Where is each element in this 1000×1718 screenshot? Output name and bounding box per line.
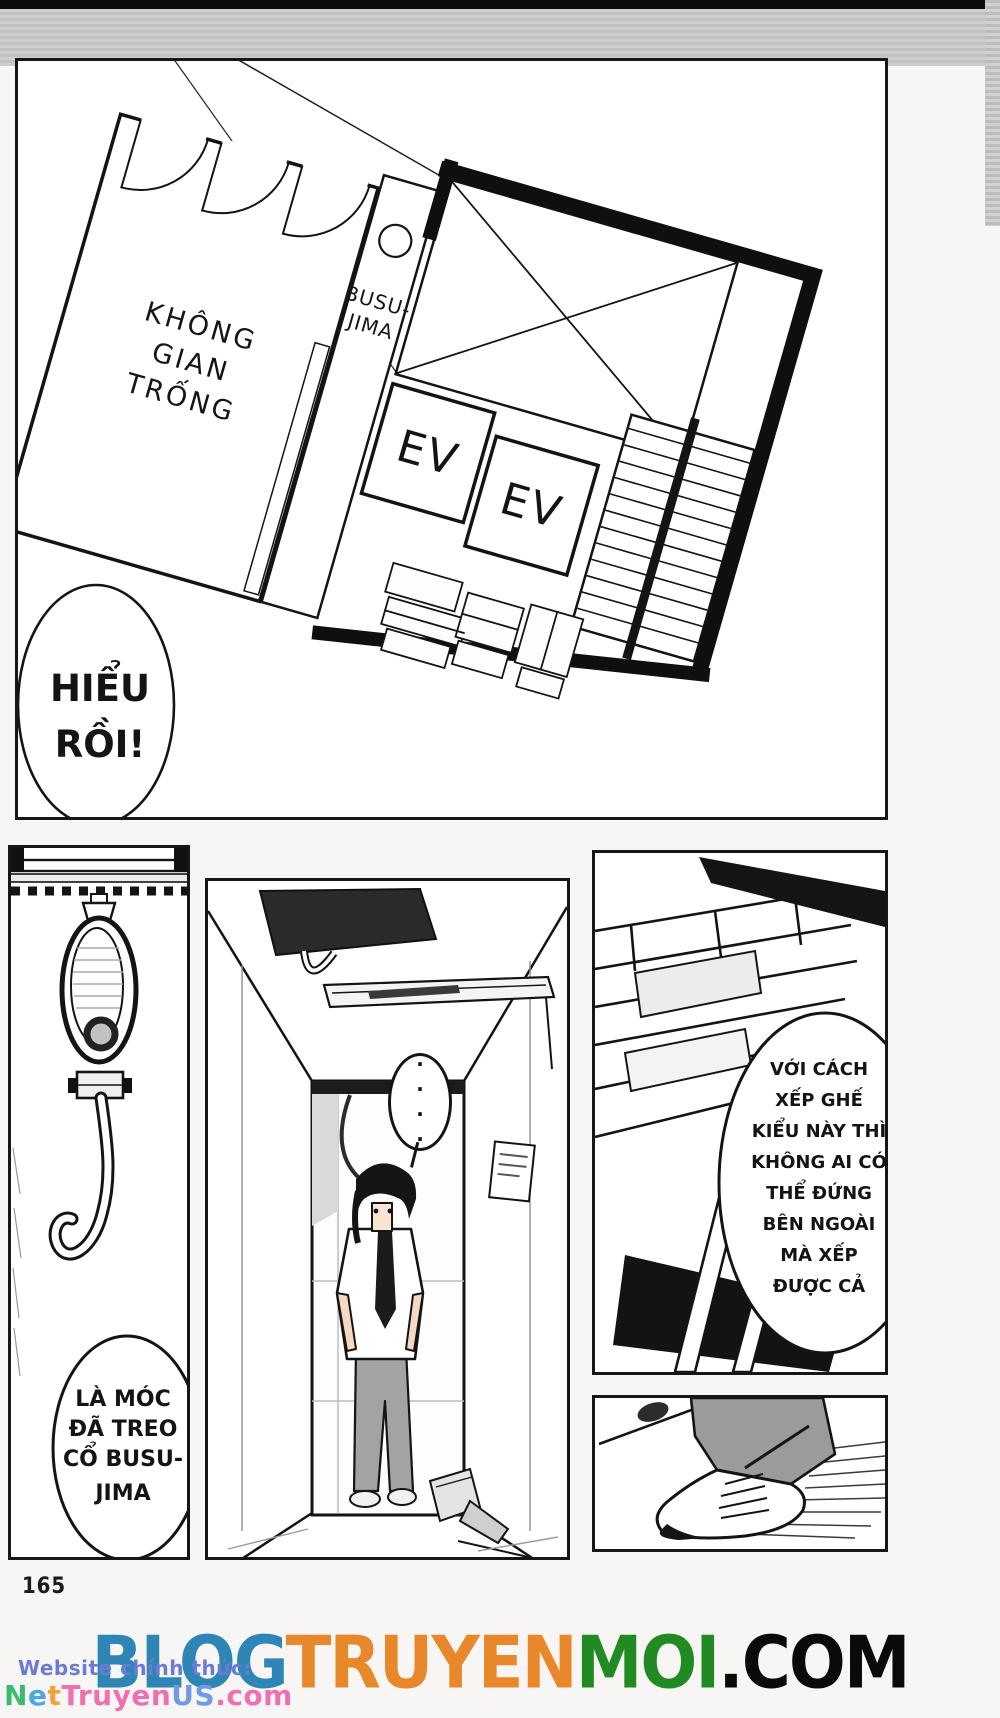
hook-panel: LÀ MÓC ĐÃ TREO CỔ BUSU- JIMA bbox=[8, 845, 190, 1560]
bubble-line: XẾP GHẾ bbox=[775, 1087, 863, 1111]
shadow-band-top bbox=[699, 857, 885, 927]
page-number: 165 bbox=[22, 1574, 66, 1599]
ellipsis-bubble: ···· bbox=[388, 1053, 452, 1151]
hallway-drawing bbox=[208, 881, 567, 1557]
bubble-line: KHÔNG AI CÓ bbox=[751, 1151, 885, 1173]
chairs-drawing: VỚI CÁCH XẾP GHẾ KIỂU NÀY THÌ KHÔNG AI C… bbox=[595, 853, 885, 1372]
bubble-line: LÀ MÓC bbox=[75, 1386, 170, 1412]
bubble-line: RỒI! bbox=[55, 717, 146, 766]
site-seg-us: US bbox=[171, 1679, 215, 1712]
ceiling-rail bbox=[11, 848, 187, 891]
bubble-line: HIỂU bbox=[50, 660, 150, 710]
site-seg-n: N bbox=[4, 1679, 28, 1712]
floorplan-drawing: KHÔNG GIAN TRỐNG BUSU- JIMA EV EV bbox=[18, 61, 885, 817]
bubble-line: MÀ XẾP bbox=[780, 1242, 857, 1266]
scan-top-bar bbox=[0, 0, 1000, 9]
furniture-cluster bbox=[369, 563, 583, 701]
bubble-line: ĐƯỢC CẢ bbox=[773, 1274, 866, 1297]
hallway-panel: ···· bbox=[205, 878, 570, 1560]
scan-halftone-band bbox=[0, 0, 1000, 66]
watermark-official-label: Website chính thức: bbox=[18, 1656, 252, 1680]
bubble-line: VỚI CÁCH bbox=[770, 1058, 868, 1080]
ceiling-sign bbox=[260, 889, 436, 971]
hook-drawing: LÀ MÓC ĐÃ TREO CỔ BUSU- JIMA bbox=[11, 848, 187, 1557]
wall-texture bbox=[13, 1148, 21, 1376]
logo-seg-truyen: TRUYEN bbox=[286, 1621, 576, 1705]
manga-page: { "page_number": "165", "floorplan_panel… bbox=[0, 0, 1000, 1718]
bubble-line: JIMA bbox=[93, 1481, 150, 1506]
bubble-line: THỂ ĐỨNG bbox=[766, 1179, 872, 1204]
bubble-line: BÊN NGOÀI bbox=[763, 1213, 876, 1235]
site-seg-truyen: Truyen bbox=[61, 1679, 171, 1712]
ellipsis-dots: ···· bbox=[410, 1052, 430, 1152]
bubble-line: CỔ BUSU- bbox=[63, 1442, 183, 1472]
shoe-panel bbox=[592, 1395, 888, 1552]
wall-notice bbox=[489, 1141, 535, 1201]
site-seg-com: .com bbox=[215, 1679, 293, 1712]
ceiling-vent bbox=[324, 977, 554, 1069]
chairs-panel: VỚI CÁCH XẾP GHẾ KIỂU NÀY THÌ KHÔNG AI C… bbox=[592, 850, 888, 1375]
site-seg-t: t bbox=[47, 1679, 61, 1712]
speech-bubble-hieu-roi: HIỂU RỒI! bbox=[18, 585, 174, 817]
shoe-drawing bbox=[595, 1398, 885, 1549]
site-seg-e: e bbox=[28, 1679, 48, 1712]
speech-bubble-la-moc: LÀ MÓC ĐÃ TREO CỔ BUSU- JIMA bbox=[53, 1336, 187, 1557]
bubble-line: ĐÃ TREO bbox=[69, 1416, 178, 1442]
logo-seg-moi: MOI bbox=[576, 1621, 719, 1705]
bubble-line: KIỂU NÀY THÌ bbox=[752, 1117, 885, 1142]
logo-seg-com: .COM bbox=[718, 1621, 908, 1705]
scan-right-edge bbox=[985, 0, 1000, 226]
floorplan-panel: KHÔNG GIAN TRỐNG BUSU- JIMA EV EV bbox=[15, 58, 888, 820]
hanging-hook bbox=[55, 894, 136, 1254]
watermark-site-name: NetTruyenUS.com bbox=[4, 1679, 293, 1712]
